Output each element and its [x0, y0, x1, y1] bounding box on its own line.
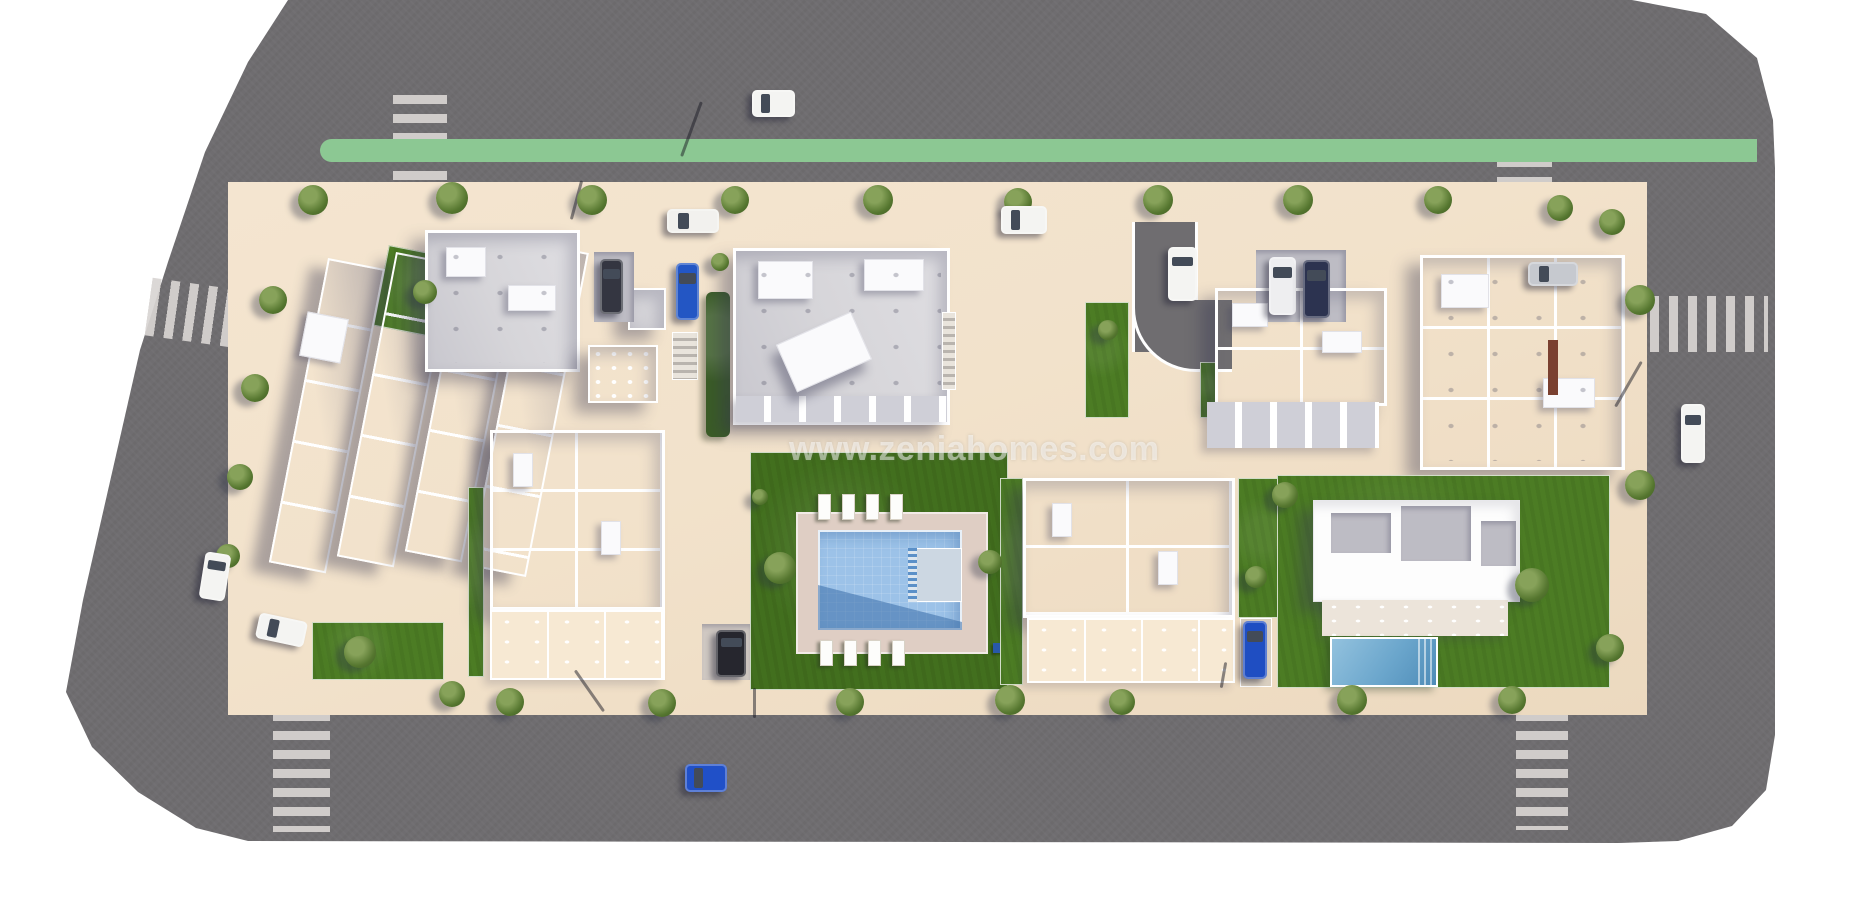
windshield [1172, 257, 1192, 267]
car-white-north-upper-lane [752, 90, 795, 117]
windshield [266, 618, 279, 638]
site-plan-render: www.zeniahomes.com [0, 0, 1868, 900]
car-blue-parked-villa-side [1243, 621, 1267, 679]
windshield [1011, 210, 1020, 230]
car-white-parked-cluster [255, 612, 308, 648]
car-white-driveway [1168, 247, 1197, 301]
windshield [761, 94, 770, 113]
van-navy-parked-c [1303, 260, 1330, 318]
car-silver-at-d [1528, 262, 1578, 286]
car-dark-parked-south [716, 630, 746, 677]
car-white-east-road [1681, 404, 1705, 463]
van-dark-parked-a [600, 259, 623, 314]
windshield [679, 273, 695, 283]
car-blue-parked-a [676, 263, 699, 320]
windshield [1273, 267, 1292, 277]
windshield [603, 269, 619, 279]
windshield [1539, 266, 1549, 283]
windshield [1247, 631, 1264, 641]
car-white-north-lower-2 [1001, 206, 1047, 234]
car-white-convertible-north-lower [667, 209, 719, 233]
watermark: www.zeniahomes.com [789, 430, 1129, 469]
windshield [1307, 270, 1326, 280]
van-white-parked-c [1269, 257, 1296, 315]
windshield [207, 560, 226, 571]
windshield [721, 638, 742, 646]
car-blue-south-road [685, 764, 727, 792]
windshield [678, 213, 688, 230]
windshield [694, 768, 702, 788]
car-white-west-road [198, 551, 231, 601]
windshield [1685, 415, 1702, 426]
